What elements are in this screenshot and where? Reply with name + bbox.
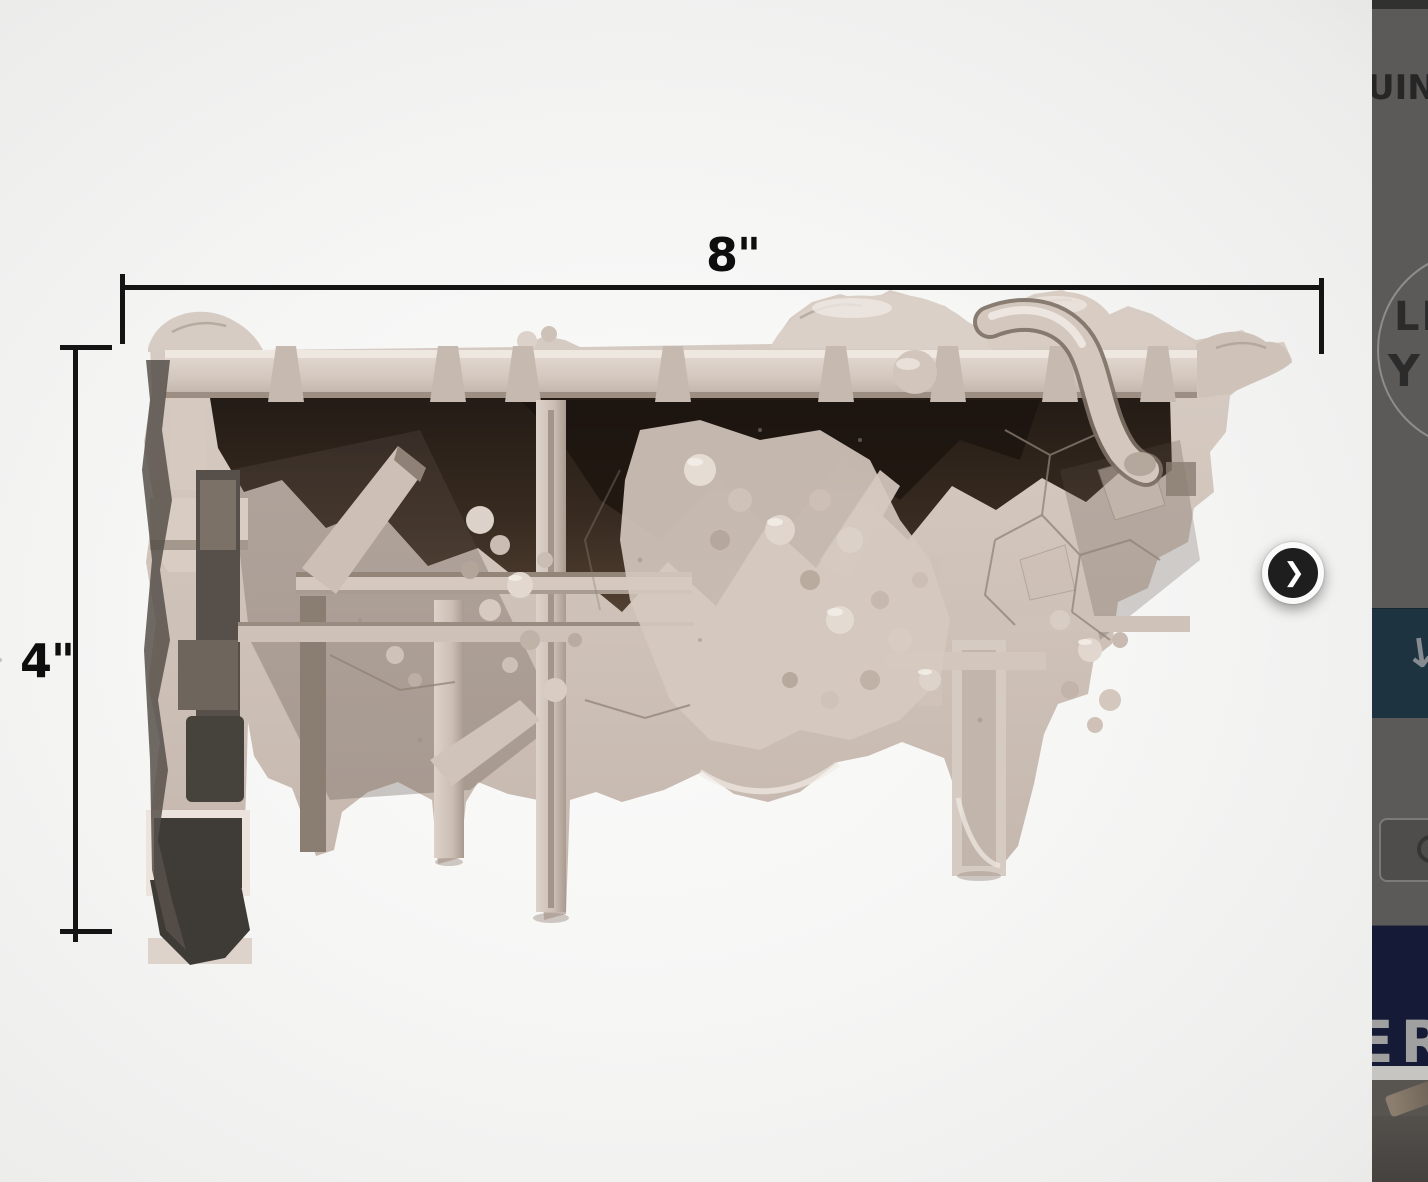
width-dimension-line [122, 285, 1322, 290]
model-render-3d [0, 0, 1372, 1182]
width-dimension-label: 8" [688, 232, 778, 278]
download-tile-button[interactable]: ↓ [1372, 608, 1428, 718]
height-dimension-label: 4" [20, 638, 80, 684]
panel-divider-strip [1372, 1066, 1428, 1080]
height-dimension-tick-bottom [60, 929, 112, 934]
panel-heading-fragment: UIN [1372, 68, 1428, 108]
model-viewer-stage[interactable]: 8" 4" ❯ [0, 0, 1372, 1182]
partial-circle-icon [1417, 835, 1428, 863]
logo-text-line1: LI [1394, 294, 1428, 340]
ledge-beam [165, 346, 1197, 402]
thumbnail-image-detail [1384, 1080, 1428, 1118]
panel-control-button[interactable] [1379, 818, 1428, 882]
download-arrow-icon: ↓ [1401, 629, 1428, 679]
thumbnail-shading [1372, 1116, 1428, 1182]
chevron-right-icon: ❯ [1283, 560, 1305, 586]
width-dimension-tick-left [120, 274, 125, 344]
height-dimension-tick-top [60, 345, 112, 350]
width-dimension-tick-right [1319, 278, 1324, 354]
product-gallery-page: 8" 4" ❯ UIN LI Y ↓ ER [0, 0, 1428, 1182]
circular-logo-badge: LI Y [1377, 250, 1428, 450]
side-panel: UIN LI Y ↓ ER [1372, 0, 1428, 1182]
promo-banner[interactable]: ER [1372, 925, 1428, 1067]
next-image-button[interactable]: ❯ [1262, 542, 1324, 604]
panel-top-border [1372, 0, 1428, 9]
gallery-thumbnail[interactable] [1372, 1080, 1428, 1182]
banner-text-fragment: ER [1372, 1013, 1428, 1071]
logo-text-line2: Y [1388, 346, 1420, 397]
